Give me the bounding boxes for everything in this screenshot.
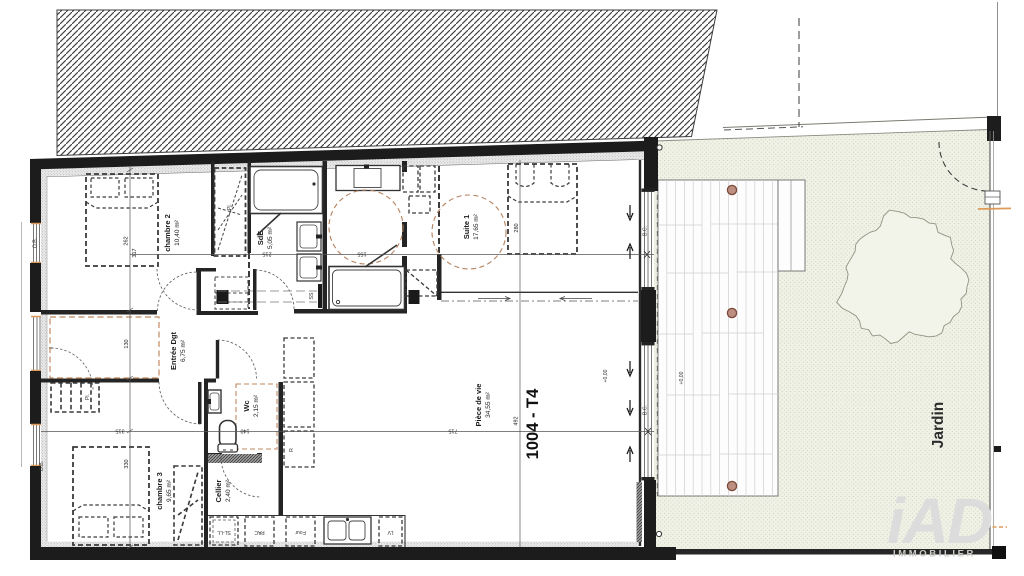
svg-text:140: 140 <box>240 428 249 434</box>
svg-text:O.B.: O.B. <box>33 238 39 248</box>
svg-text:Pl.: Pl. <box>227 204 233 210</box>
svg-text:Wc: Wc <box>242 400 251 411</box>
svg-text:B.C.: B.C. <box>643 226 649 236</box>
svg-text:2,40 m²: 2,40 m² <box>225 479 232 502</box>
svg-text:6,75 m²: 6,75 m² <box>180 339 187 362</box>
svg-text:17,65 m²: 17,65 m² <box>473 213 480 239</box>
svg-text:34,55 m²: 34,55 m² <box>485 391 492 417</box>
svg-text:315: 315 <box>115 428 124 434</box>
svg-text:Pièce de vie: Pièce de vie <box>474 384 483 427</box>
svg-text:Suite 1: Suite 1 <box>462 215 471 240</box>
svg-text:1004 - T4: 1004 - T4 <box>524 388 542 459</box>
svg-text:chambre 2: chambre 2 <box>163 214 172 252</box>
svg-text:+0,00: +0,00 <box>679 371 685 384</box>
svg-text:9,65 m²: 9,65 m² <box>166 479 173 502</box>
svg-text:Jardin: Jardin <box>930 402 947 449</box>
svg-text:Four: Four <box>295 529 306 535</box>
svg-text:130: 130 <box>124 339 130 348</box>
svg-text:2,15 m²: 2,15 m² <box>253 394 260 417</box>
svg-text:SdE: SdE <box>256 231 265 246</box>
svg-text:iAD: iAD <box>887 485 992 557</box>
svg-text:Cellier: Cellier <box>214 479 223 502</box>
svg-text:+0,00: +0,00 <box>603 369 609 382</box>
svg-text:262: 262 <box>124 236 130 245</box>
svg-text:chambre 3: chambre 3 <box>155 472 164 510</box>
svg-text:PAC: PAC <box>254 529 265 535</box>
svg-text:280: 280 <box>514 223 520 232</box>
svg-text:155: 155 <box>357 251 366 257</box>
svg-text:O.B.: O.B. <box>39 461 45 471</box>
svg-text:IMMOBILIER: IMMOBILIER <box>893 549 976 560</box>
svg-text:Entrée Dgt: Entrée Dgt <box>169 332 178 370</box>
svg-text:R: R <box>289 448 295 452</box>
svg-text:10,40 m²: 10,40 m² <box>174 219 181 245</box>
svg-text:Pl.: Pl. <box>85 394 91 400</box>
svg-text:330: 330 <box>124 459 130 468</box>
svg-text:317: 317 <box>132 248 138 257</box>
svg-text:215: 215 <box>262 251 271 257</box>
svg-text:492: 492 <box>514 416 520 425</box>
svg-text:B.C.: B.C. <box>643 405 649 415</box>
svg-text:LV: LV <box>387 529 393 535</box>
svg-text:5,05 m²: 5,05 m² <box>267 226 274 249</box>
svg-text:SL-LL: SL-LL <box>217 529 231 535</box>
svg-text:715: 715 <box>448 428 457 434</box>
svg-text:SS: SS <box>309 292 315 299</box>
